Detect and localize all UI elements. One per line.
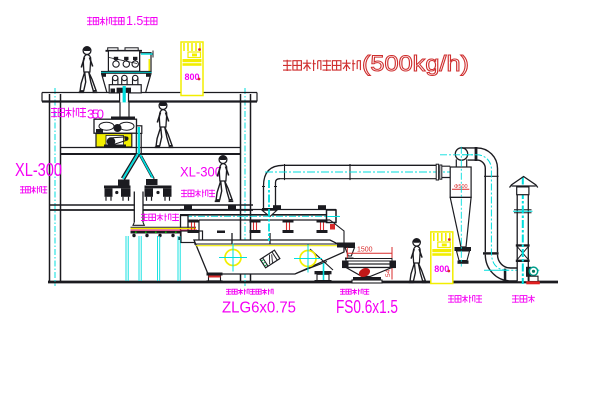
svg-text:1.5: 1.5 (126, 14, 143, 28)
svg-text:FS0.6x1.5: FS0.6x1.5 (336, 297, 398, 317)
svg-text:1500: 1500 (357, 247, 373, 254)
svg-text:(500kg/h): (500kg/h) (362, 51, 469, 76)
svg-text:XL-300: XL-300 (180, 164, 222, 180)
svg-text:XL-300: XL-300 (15, 160, 62, 180)
svg-text:800: 800 (434, 264, 449, 274)
svg-text:Φ500: Φ500 (454, 184, 468, 190)
svg-text:800: 800 (185, 72, 200, 82)
svg-text:ZLG6x0.75: ZLG6x0.75 (222, 300, 296, 317)
